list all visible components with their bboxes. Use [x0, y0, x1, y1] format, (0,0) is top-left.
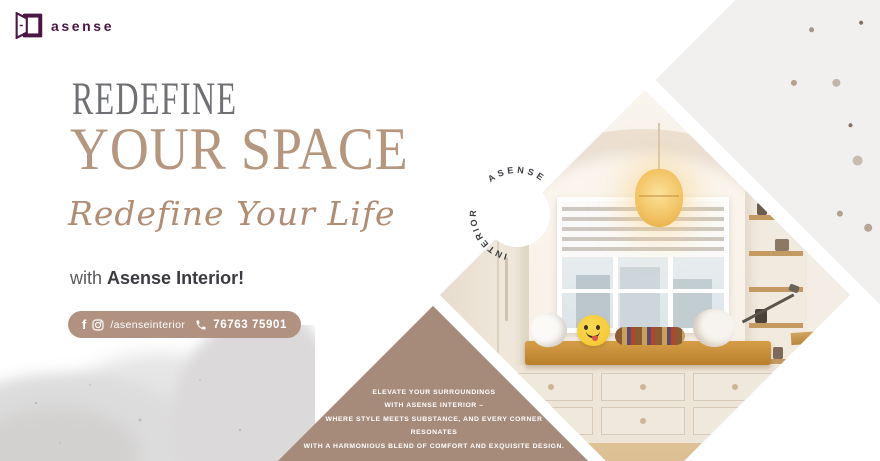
shelf-decor: [775, 239, 789, 251]
logo-wordmark: asense: [51, 18, 114, 34]
tagline-line: WITH A HARMONIOUS BLEND OF COMFORT AND E…: [303, 440, 565, 453]
tagline-text: ELEVATE YOUR SURROUNDINGS WITH ASENSE IN…: [303, 386, 565, 453]
tagline-line: ELEVATE YOUR SURROUNDINGS: [303, 386, 565, 399]
asense-logo: asense: [14, 12, 114, 39]
shelf-decor: [757, 203, 767, 215]
tagline-line: WITH ASENSE INTERIOR –: [303, 399, 565, 412]
smiley-pillow: [577, 315, 610, 346]
tagline-line: WHERE STYLE MEETS SUBSTANCE, AND EVERY C…: [303, 413, 565, 440]
asense-interior-stamp-badge: ASENSE INTERIOR: [462, 159, 572, 269]
desk-leg: [817, 343, 821, 427]
striped-bolster: [615, 327, 685, 345]
lamp-cord: [658, 123, 660, 171]
banner-canvas: asense REDEFINE YOUR SPACE Redefine Your…: [0, 0, 880, 461]
subline-brand: Asense Interior!: [107, 268, 244, 288]
window-mullion: [562, 289, 724, 293]
headline-subline: with Asense Interior!: [70, 268, 244, 289]
contact-bar[interactable]: f /asenseinterior 76763 75901: [68, 311, 301, 338]
building-silhouette: [620, 267, 660, 328]
headline-your-space: YOUR SPACE: [70, 115, 409, 184]
facebook-icon[interactable]: f: [82, 318, 86, 331]
headline-script: Redefine Your Life: [68, 194, 396, 233]
watercolor-texture: [0, 325, 315, 461]
phone-icon: [195, 319, 207, 331]
pendant-lamp: [635, 169, 683, 227]
open-door-icon: [14, 12, 44, 39]
phone-number[interactable]: 76763 75901: [213, 319, 287, 331]
subline-prefix: with: [70, 268, 102, 288]
shelf-decor: [773, 347, 783, 359]
watercolor-speckles: [0, 325, 315, 461]
social-handle[interactable]: /asenseinterior: [110, 319, 185, 331]
instagram-icon[interactable]: [92, 319, 104, 331]
stamp-circle: [484, 181, 550, 247]
